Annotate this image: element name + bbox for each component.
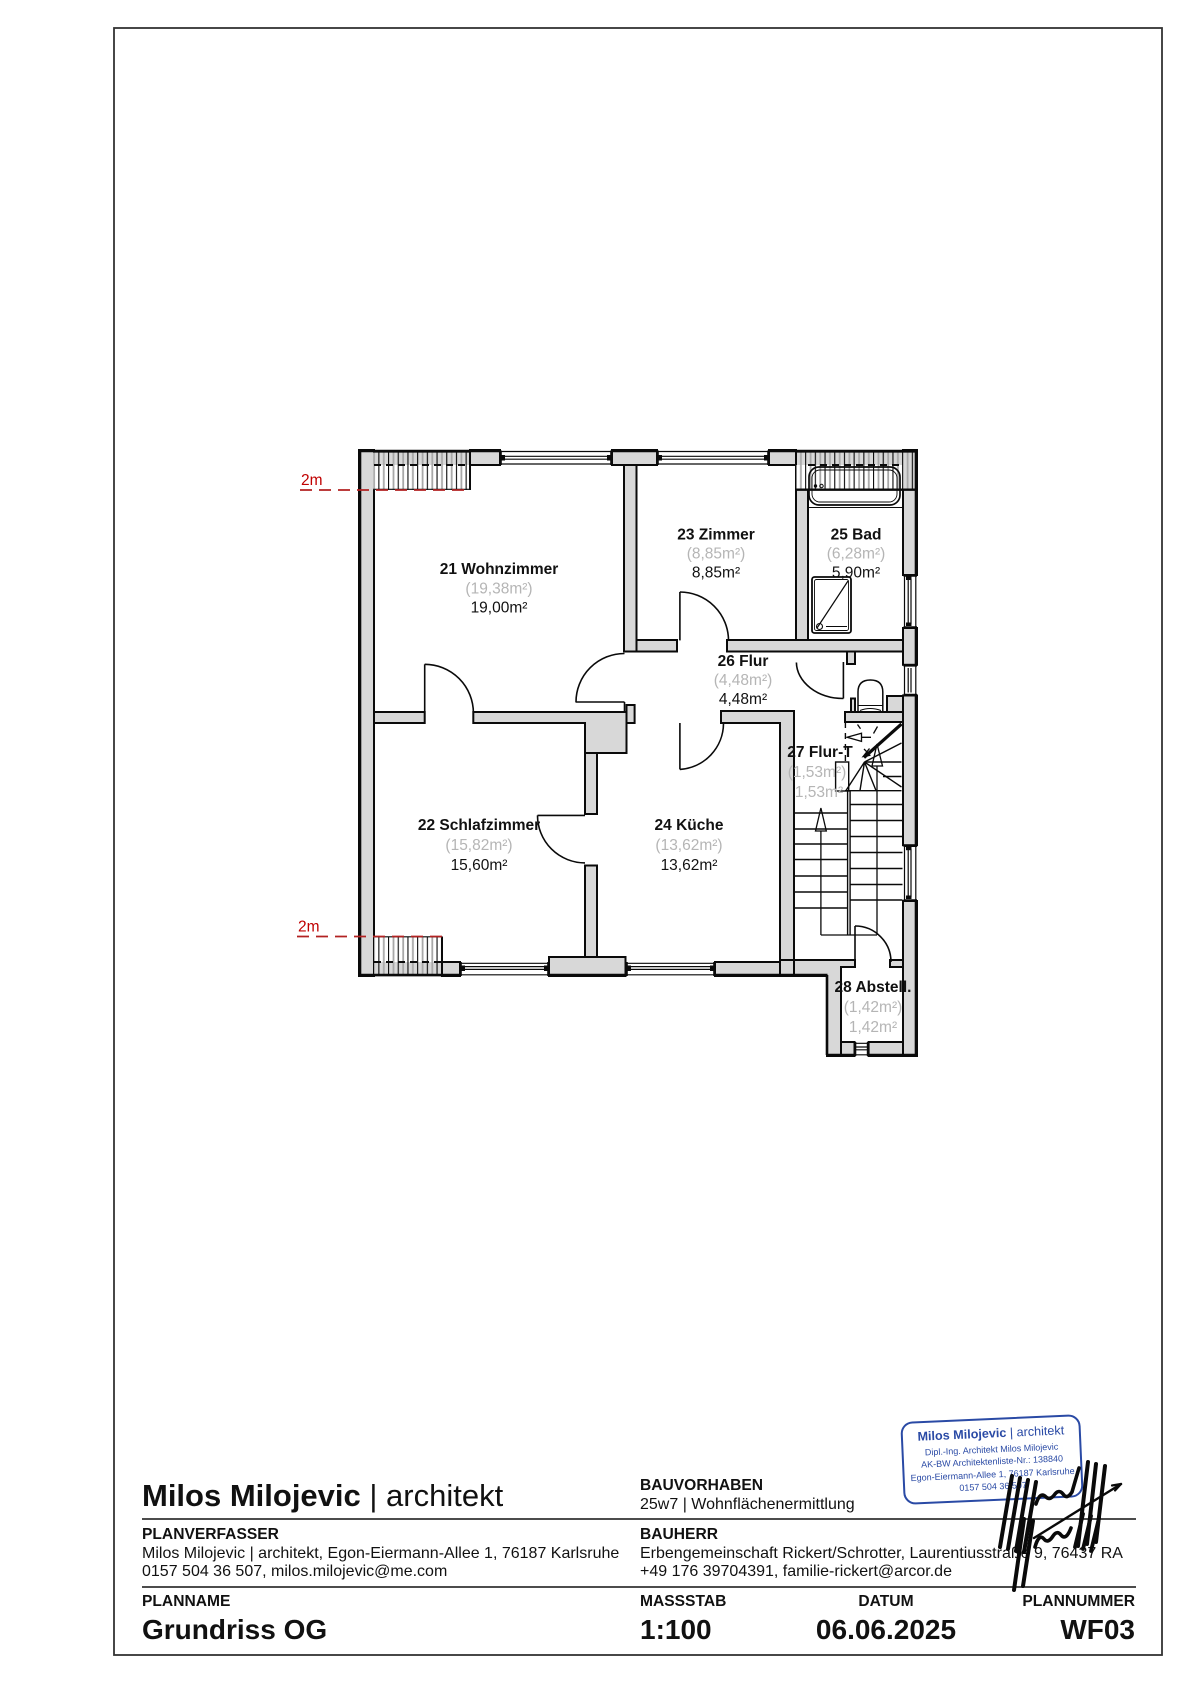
svg-text:(13,62m²): (13,62m²) [655, 837, 722, 854]
svg-text:(4,48m²): (4,48m²) [714, 672, 773, 689]
svg-text:0157 504 36 507, milos.milojev: 0157 504 36 507, milos.milojevic@me.com [142, 1563, 447, 1580]
svg-text:1:100: 1:100 [640, 1614, 712, 1645]
svg-text:DATUM: DATUM [858, 1593, 913, 1610]
svg-text:26 Flur: 26 Flur [718, 653, 769, 670]
svg-text:(1,42m²): (1,42m²) [844, 999, 903, 1016]
svg-text:(1,53m²): (1,53m²) [788, 764, 847, 781]
svg-text:24 Küche: 24 Küche [655, 817, 724, 834]
svg-text:MASSSTAB: MASSSTAB [640, 1593, 726, 1610]
svg-text:25w7 | Wohnflächenermittlung: 25w7 | Wohnflächenermittlung [640, 1496, 855, 1513]
svg-text:Milos Milojevic | architekt: Milos Milojevic | architekt [142, 1478, 504, 1513]
svg-text:(6,28m²): (6,28m²) [827, 546, 886, 563]
svg-text:(8,85m²): (8,85m²) [687, 546, 746, 563]
svg-text:23 Zimmer: 23 Zimmer [677, 527, 755, 544]
svg-text:19,00m²: 19,00m² [471, 600, 528, 617]
svg-text:4,48m²: 4,48m² [719, 691, 767, 708]
svg-text:13,62m²: 13,62m² [661, 857, 718, 874]
svg-text:2m: 2m [298, 919, 320, 936]
svg-text:+49 176 39704391, familie-rick: +49 176 39704391, familie-rickert@arcor.… [640, 1563, 952, 1580]
svg-text:PLANNUMMER: PLANNUMMER [1022, 1593, 1135, 1610]
svg-text:2m: 2m [301, 472, 323, 489]
svg-text:8,85m²: 8,85m² [692, 565, 740, 582]
svg-text:BAUHERR: BAUHERR [640, 1526, 718, 1543]
svg-text:28 Abstell.: 28 Abstell. [835, 979, 912, 996]
svg-text:22 Schlafzimmer: 22 Schlafzimmer [418, 817, 540, 834]
svg-text:06.06.2025: 06.06.2025 [816, 1614, 956, 1645]
svg-text:1,53m²: 1,53m² [795, 784, 843, 801]
svg-text:27 Flur-T: 27 Flur-T [787, 744, 853, 761]
svg-text:PLANNAME: PLANNAME [142, 1593, 230, 1610]
svg-text:BAUVORHABEN: BAUVORHABEN [640, 1477, 763, 1494]
svg-text:(15,82m²): (15,82m²) [445, 837, 512, 854]
svg-text:15,60m²: 15,60m² [451, 857, 508, 874]
svg-text:Milos Milojevic | architekt, E: Milos Milojevic | architekt, Egon-Eierma… [142, 1545, 619, 1562]
svg-text:Grundriss OG: Grundriss OG [142, 1614, 327, 1645]
svg-text:(19,38m²): (19,38m²) [465, 581, 532, 598]
svg-text:21 Wohnzimmer: 21 Wohnzimmer [440, 561, 559, 578]
svg-text:PLANVERFASSER: PLANVERFASSER [142, 1526, 279, 1543]
svg-text:1,42m²: 1,42m² [849, 1019, 897, 1036]
svg-text:WF03: WF03 [1060, 1614, 1135, 1645]
svg-text:Erbengemeinschaft Rickert/Schr: Erbengemeinschaft Rickert/Schrotter, Lau… [640, 1545, 1123, 1562]
svg-text:5,90m²: 5,90m² [832, 565, 880, 582]
svg-text:25 Bad: 25 Bad [831, 527, 882, 544]
